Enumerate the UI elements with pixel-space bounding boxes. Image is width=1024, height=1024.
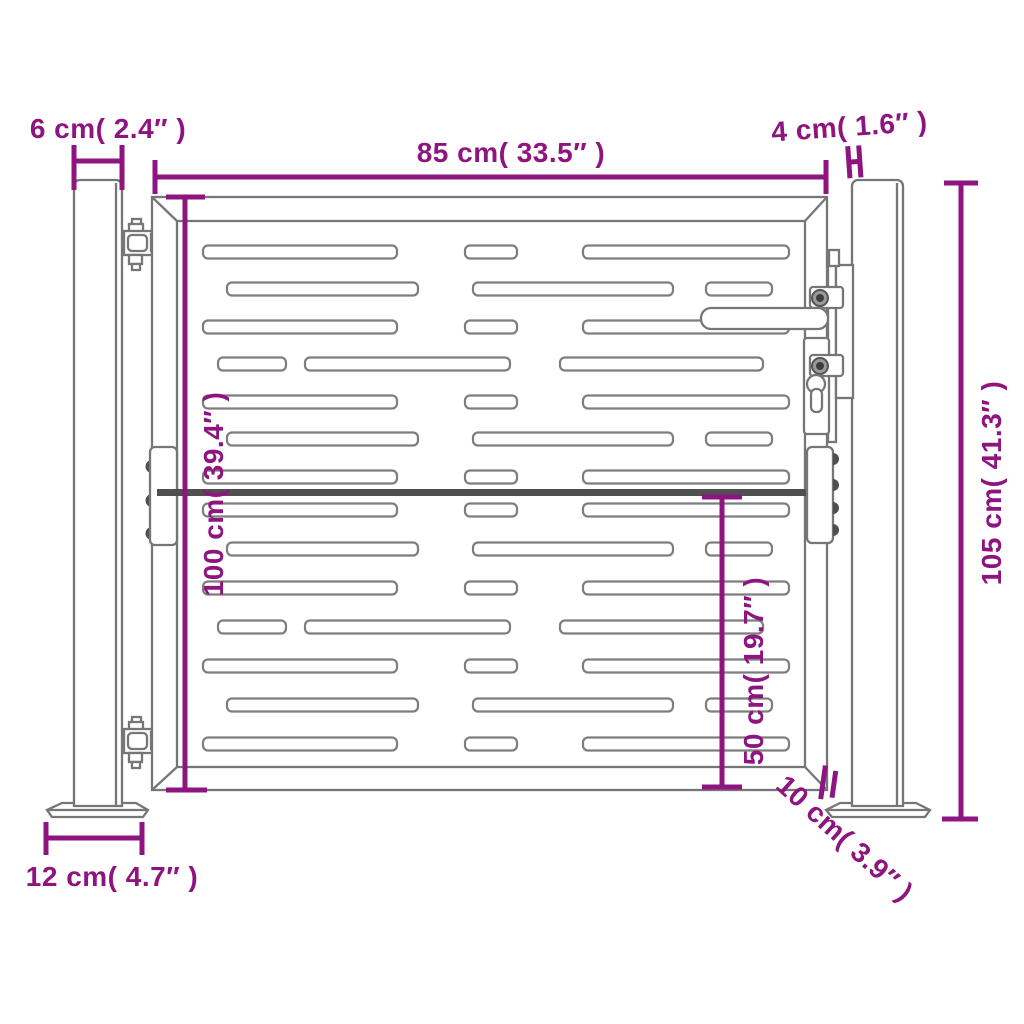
- gate-slot: [305, 358, 510, 371]
- dim-post-width-label: 6 cm( 2.4″ ): [30, 113, 186, 144]
- gate-slot: [227, 543, 418, 556]
- gate-slot: [465, 396, 517, 409]
- gate-slot: [203, 504, 397, 517]
- dim-gate-width: 85 cm( 33.5″ ): [155, 137, 826, 194]
- gate-slot: [227, 283, 418, 296]
- gate-slot: [203, 660, 397, 673]
- gate-slot: [465, 246, 517, 259]
- gate-slot: [203, 471, 397, 484]
- gate-slot: [203, 246, 397, 259]
- dim-base-plate-label: 12 cm( 4.7″ ): [26, 861, 198, 892]
- gate-slot: [465, 582, 517, 595]
- gate-slot: [706, 283, 772, 296]
- handle-lever: [701, 308, 828, 329]
- dim-post-gap-label: 4 cm( 1.6″ ): [770, 106, 928, 148]
- gate-slot: [583, 396, 789, 409]
- gate-slot: [203, 582, 397, 595]
- left-post-body: [74, 180, 122, 806]
- dimension-diagram: 6 cm( 2.4″ ) 85 cm( 33.5″ ) 4 cm( 1.6″ )…: [0, 0, 1024, 1024]
- gate-lock-plate: [807, 447, 839, 543]
- gate-slot: [305, 621, 510, 634]
- gate-slot: [203, 396, 397, 409]
- gate-slot: [465, 504, 517, 517]
- gate-slot: [583, 246, 789, 259]
- dim-post-height: 105 cm( 41.3″ ): [942, 183, 1007, 819]
- strike-plate-step: [829, 250, 839, 266]
- strike-plate: [836, 265, 853, 398]
- gate-slot: [473, 699, 673, 712]
- gate-drawing: 6 cm( 2.4″ ) 85 cm( 33.5″ ) 4 cm( 1.6″ )…: [0, 0, 1024, 1024]
- dim-post-gap: 4 cm( 1.6″ ): [770, 106, 931, 184]
- gate-slot: [227, 433, 418, 446]
- gate-slot: [465, 321, 517, 334]
- gate-slot: [203, 738, 397, 751]
- gate-slot: [583, 504, 789, 517]
- gate-slot: [473, 543, 673, 556]
- dim-gate-height-label: 100 cm( 39.4″ ): [198, 392, 229, 597]
- gate-slot: [218, 358, 286, 371]
- gate-slot: [473, 283, 673, 296]
- gate-slot: [706, 543, 772, 556]
- dim-gate-width-label: 85 cm( 33.5″ ): [417, 137, 606, 168]
- gate-slot: [560, 621, 763, 634]
- gate-slot: [227, 699, 418, 712]
- gate-slot: [706, 433, 772, 446]
- gate-slot: [465, 660, 517, 673]
- gate-slot: [465, 471, 517, 484]
- dim-base-plate: 12 cm( 4.7″ ): [26, 822, 198, 892]
- gate-slot: [473, 433, 673, 446]
- latch-bracket-top: [810, 287, 843, 308]
- gate-slot: [203, 321, 397, 334]
- right-post-body: [852, 180, 903, 806]
- gate-slot: [560, 358, 763, 371]
- gate-slot: [218, 621, 286, 634]
- dim-lower-half-label: 50 cm( 19.7″ ): [738, 577, 769, 766]
- gate-slot: [465, 738, 517, 751]
- latch-bracket-bottom: [810, 355, 843, 376]
- gate-slot: [583, 471, 789, 484]
- dim-post-height-label: 105 cm( 41.3″ ): [976, 381, 1007, 586]
- gate-panel: [146, 197, 840, 790]
